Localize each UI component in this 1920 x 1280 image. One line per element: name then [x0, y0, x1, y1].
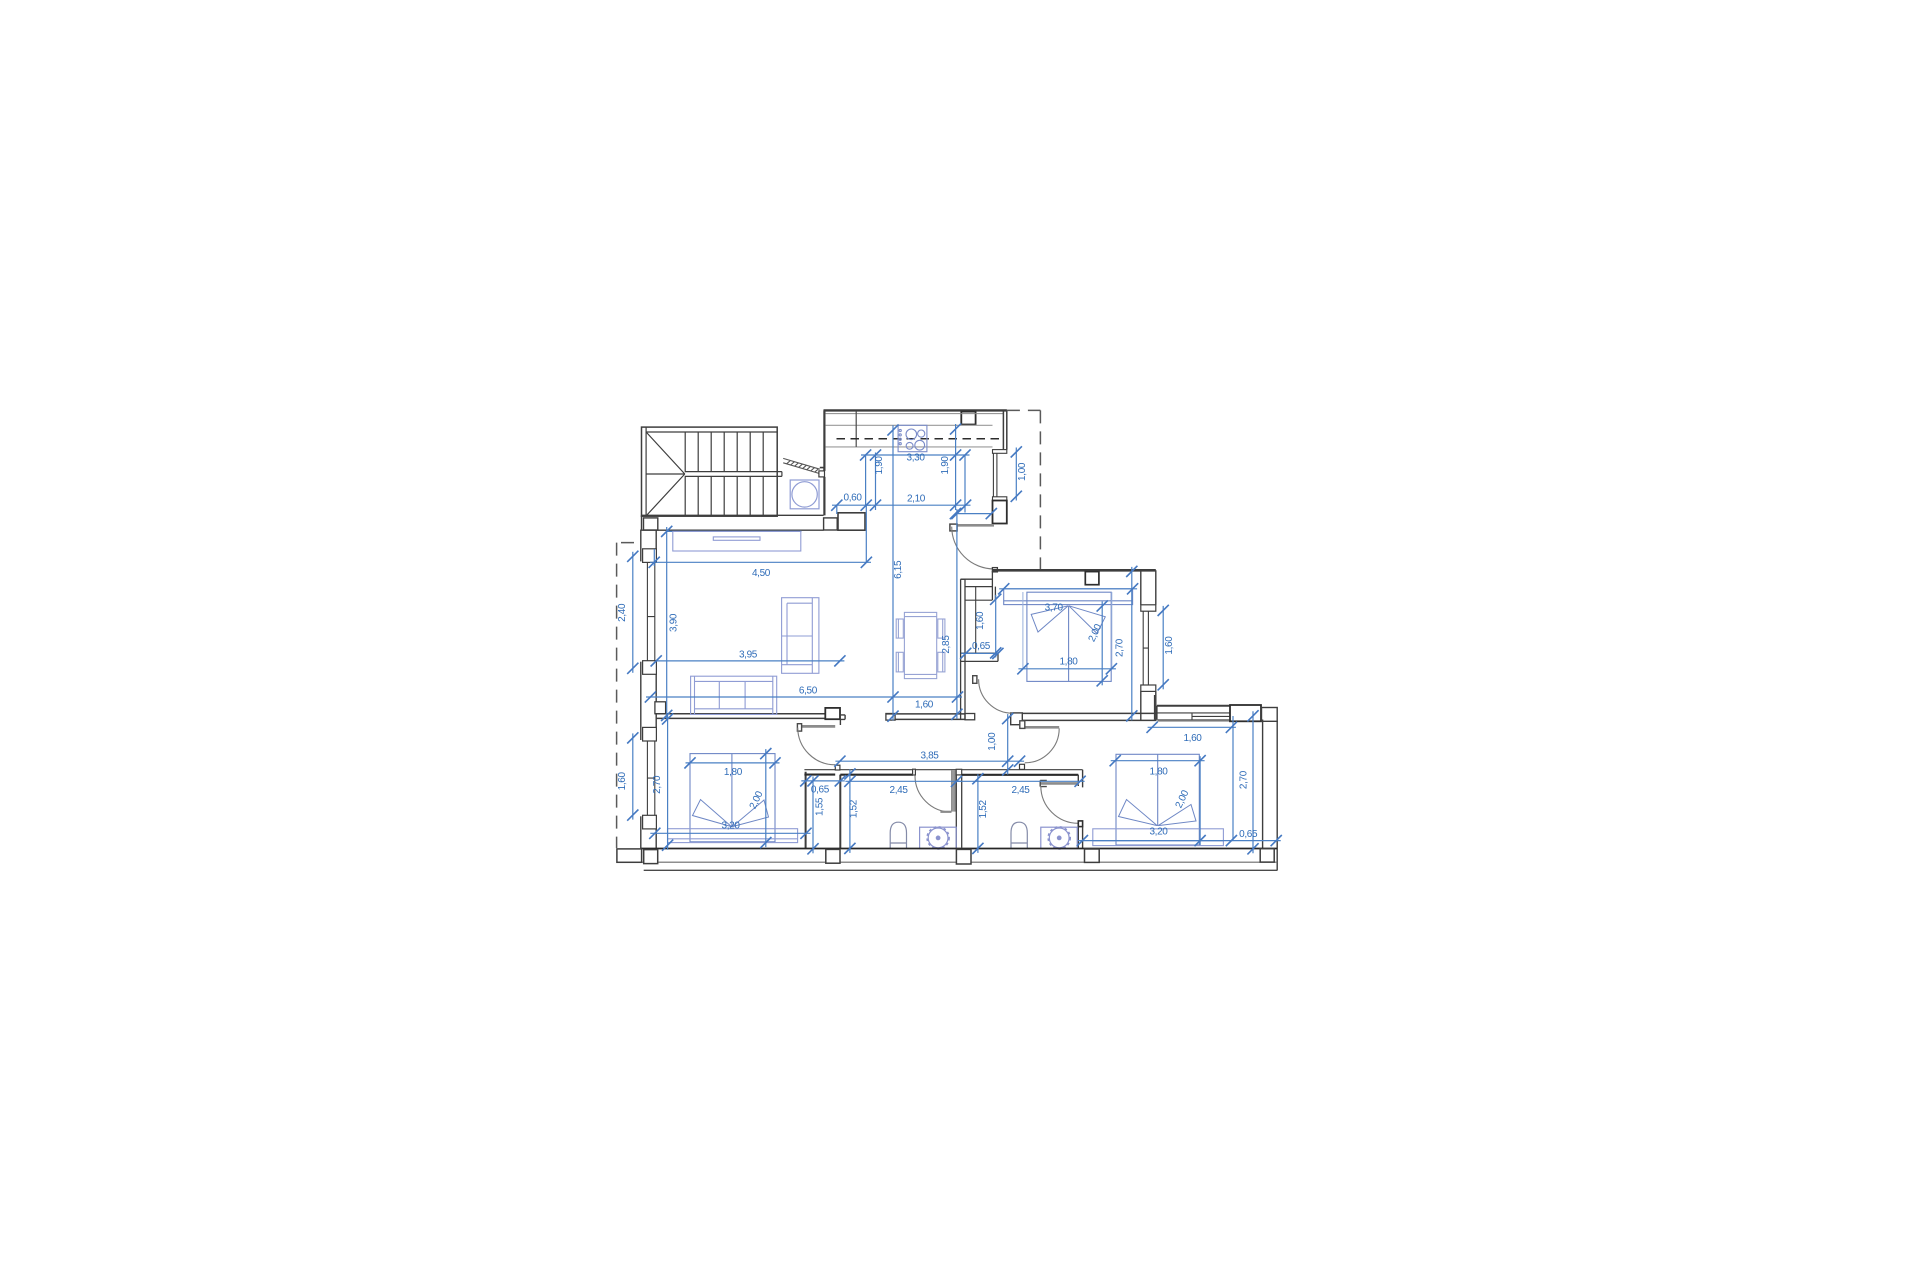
svg-text:2,00: 2,00 — [1174, 788, 1192, 810]
svg-text:2,10: 2,10 — [907, 494, 926, 505]
svg-text:2,85: 2,85 — [941, 635, 952, 654]
svg-text:2,40: 2,40 — [617, 603, 628, 622]
svg-text:1,60: 1,60 — [975, 611, 986, 630]
svg-text:1,60: 1,60 — [915, 699, 934, 710]
svg-text:3,95: 3,95 — [739, 650, 758, 661]
svg-text:1,60: 1,60 — [1164, 636, 1175, 655]
svg-text:1,80: 1,80 — [724, 767, 743, 778]
svg-text:0,65: 0,65 — [1239, 829, 1258, 840]
svg-text:1,52: 1,52 — [978, 799, 989, 818]
svg-text:2,45: 2,45 — [1011, 785, 1030, 796]
svg-text:2,70: 2,70 — [652, 775, 663, 794]
svg-text:0,65: 0,65 — [811, 784, 830, 795]
svg-text:1,00: 1,00 — [987, 732, 998, 751]
svg-text:1,55: 1,55 — [814, 797, 825, 816]
svg-text:2,00: 2,00 — [748, 789, 766, 811]
svg-text:1,52: 1,52 — [849, 799, 860, 818]
svg-text:2,45: 2,45 — [890, 785, 909, 796]
svg-text:3,70: 3,70 — [1045, 603, 1064, 614]
svg-text:3,85: 3,85 — [920, 750, 939, 761]
svg-text:1,80: 1,80 — [1059, 656, 1078, 667]
svg-text:1,90: 1,90 — [874, 456, 885, 475]
svg-text:3,30: 3,30 — [907, 453, 926, 464]
svg-text:2,70: 2,70 — [1239, 770, 1250, 789]
svg-text:0,60: 0,60 — [844, 492, 863, 503]
svg-text:4,50: 4,50 — [752, 568, 771, 579]
svg-text:1,90: 1,90 — [940, 456, 951, 475]
svg-text:3,20: 3,20 — [722, 820, 741, 831]
svg-text:1,00: 1,00 — [1017, 462, 1028, 481]
svg-text:3,90: 3,90 — [668, 613, 679, 632]
svg-text:1,60: 1,60 — [617, 771, 628, 790]
svg-text:3,20: 3,20 — [1149, 826, 1168, 837]
svg-text:2,70: 2,70 — [1115, 638, 1126, 657]
svg-text:1,80: 1,80 — [1149, 767, 1168, 778]
svg-text:6,15: 6,15 — [893, 560, 904, 579]
svg-text:0,65: 0,65 — [972, 641, 991, 652]
svg-text:6,50: 6,50 — [799, 685, 818, 696]
svg-text:1,60: 1,60 — [1183, 733, 1202, 744]
